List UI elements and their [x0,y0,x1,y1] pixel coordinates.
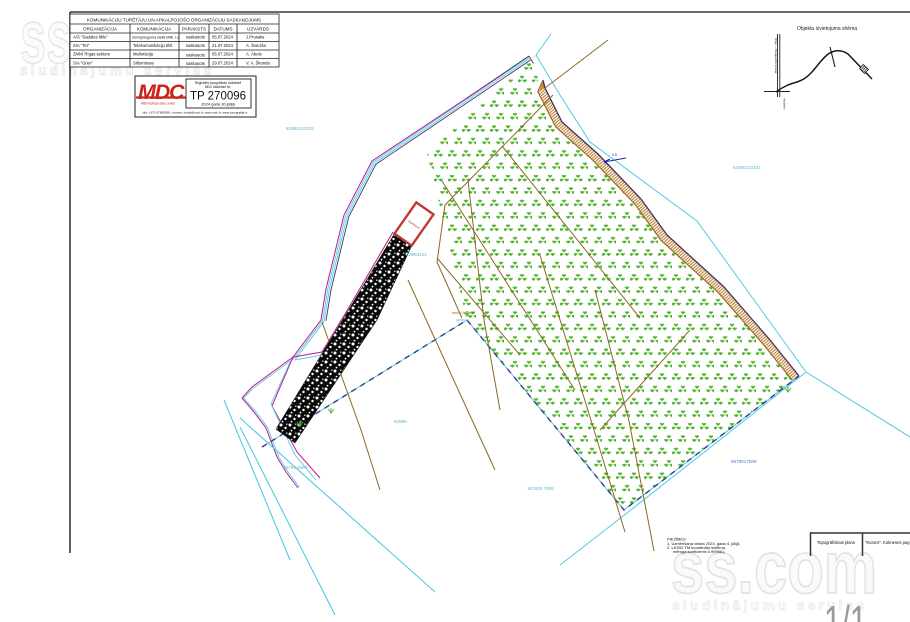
svg-text:saskaņots: saskaņots [186,53,205,58]
svg-text:tālr. +371 67609030, e-pasts:: tālr. +371 67609030, e-pasts: birojs@mdc… [143,111,248,115]
svg-text:62880110235: 62880110235 [286,126,314,131]
svg-text:Objekta izvietojuma shēma: Objekta izvietojuma shēma [797,26,857,32]
svg-text:Vecbebri: Vecbebri [783,98,787,110]
svg-text:A. Ābele: A. Ābele [246,52,263,57]
svg-text:mežs 0,45 ha: mežs 0,45 ha [452,311,474,315]
svg-text:saskaņots: saskaņots [186,43,205,48]
svg-text:56789 4567: 56789 4567 [283,465,308,470]
svg-text:Rīga — Daugavpils šoseja: Rīga — Daugavpils šoseja [774,38,778,74]
svg-text:saskaņots: saskaņots [186,61,205,66]
svg-text:2024.gada 30.jūlijā: 2024.gada 30.jūlijā [201,102,235,107]
svg-text:PARAKSTS: PARAKSTS [182,27,206,32]
svg-text:Siltumtrase: Siltumtrase [133,61,155,66]
svg-text:MDC: MDC [138,80,185,104]
svg-text:05.07.2024: 05.07.2024 [212,35,234,40]
svg-text:62880110: 62880110 [456,318,469,322]
svg-text:A/S "Sadales tīkls": A/S "Sadales tīkls" [73,35,108,40]
svg-text:29.07.2024: 29.07.2024 [212,61,234,66]
svg-text:ZMNĪ Rīgas sektors: ZMNĪ Rīgas sektors [73,52,110,57]
svg-text:62880: 62880 [394,419,407,424]
svg-text:V. A. Škunda: V. A. Škunda [246,61,270,66]
svg-text:saskaņots: saskaņots [186,35,205,40]
svg-text:"Kvarcs". Kokneses pag.,: "Kvarcs". Kokneses pag., [865,540,910,545]
svg-text:DATUMS: DATUMS [213,27,232,32]
svg-text:SIA "Gren": SIA "Gren" [73,61,93,66]
svg-text:SIA "Tet": SIA "Tet" [73,43,90,48]
svg-text:Telekomunikāciju tīkli: Telekomunikāciju tīkli [133,43,172,48]
svg-text:628801102: 628801102 [406,252,427,257]
svg-text:KOMUNIKĀCIJA: KOMUNIKĀCIJA [137,26,172,32]
svg-text:1/1: 1/1 [824,596,867,622]
svg-text:KOMUNIKĀCIJU TURĒTĀJU UN APKAL: KOMUNIKĀCIJU TURĒTĀJU UN APKALPOJOŠO ORG… [87,17,261,23]
svg-text:167800 7905: 167800 7905 [527,486,554,491]
svg-text:Meliorācija: Meliorācija [133,52,154,57]
svg-text:05.07.2024: 05.07.2024 [212,52,234,57]
svg-text:Mērniecības datu centrs: Mērniecības datu centrs [141,102,175,106]
svg-text:J.Prusaks: J.Prusaks [246,35,264,40]
svg-text:8678017909: 8678017909 [731,459,757,464]
svg-text:UZVĀRDS: UZVĀRDS [247,26,269,32]
svg-text:0.5: 0.5 [612,153,617,157]
svg-text:A. Šveciša: A. Šveciša [246,43,266,48]
svg-text:Topogrāfiskais plāns: Topogrāfiskais plāns [817,540,855,545]
svg-text:62880110101: 62880110101 [733,165,761,170]
svg-text:mēroga koeficients 0,999661,: mēroga koeficients 0,999661, [673,549,725,554]
svg-text:Zemsprieguma elektrotīkli, t.v: Zemsprieguma elektrotīkli, t.v. [132,36,180,40]
svg-text:MDC datubāzē Nr.: MDC datubāzē Nr. [205,85,231,89]
svg-text:21.07.2024: 21.07.2024 [212,43,234,48]
svg-text:ORGANIZĀCIJA: ORGANIZĀCIJA [83,26,118,32]
